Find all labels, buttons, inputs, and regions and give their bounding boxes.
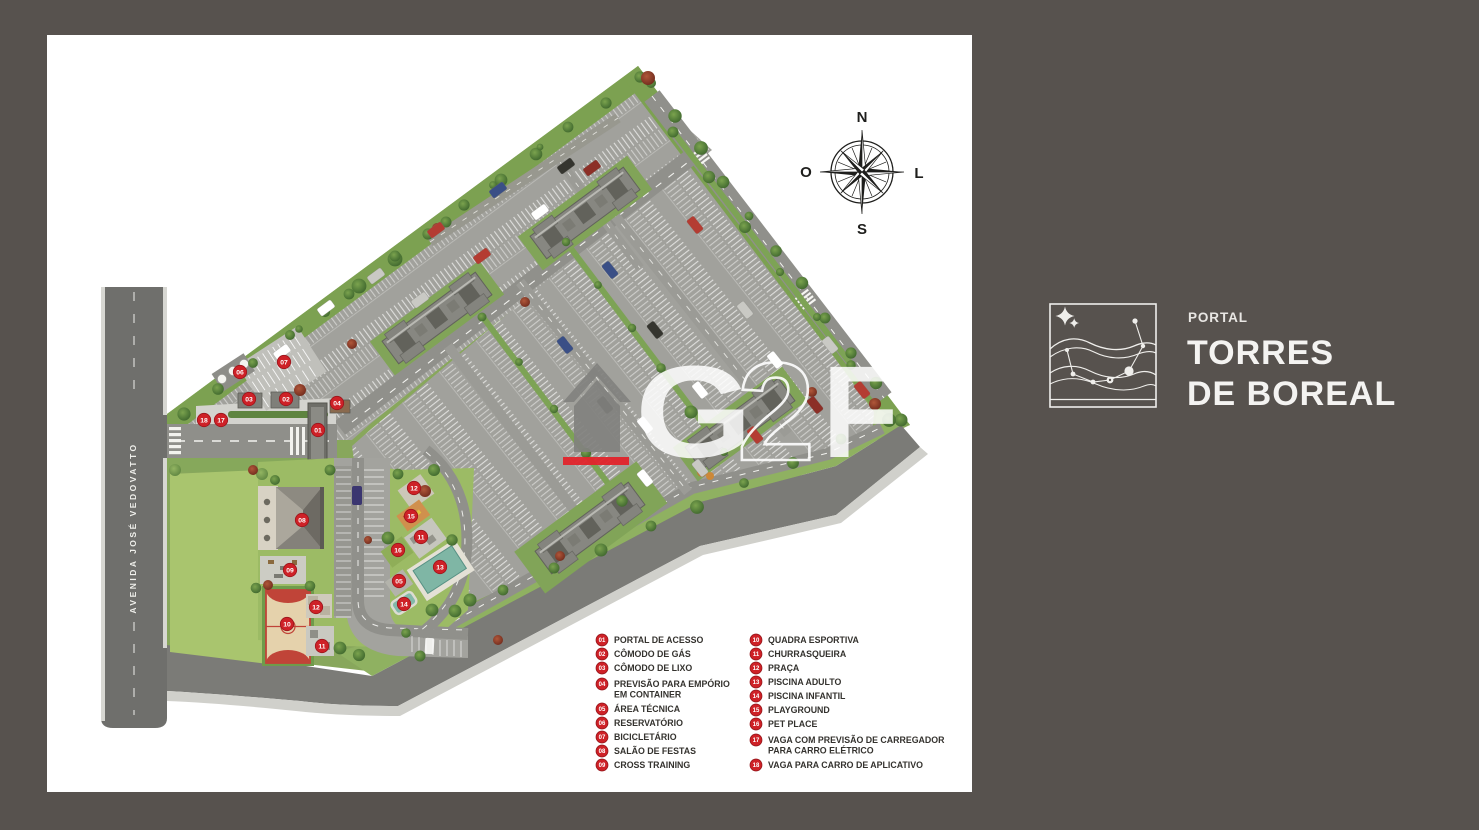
svg-text:VAGA COM PREVISÃO DE CARREGADO: VAGA COM PREVISÃO DE CARREGADOR xyxy=(768,735,945,745)
svg-text:DE BOREAL: DE BOREAL xyxy=(1187,375,1396,413)
svg-text:09: 09 xyxy=(599,763,606,769)
svg-text:15: 15 xyxy=(753,708,760,714)
svg-text:PRAÇA: PRAÇA xyxy=(768,663,800,673)
svg-text:06: 06 xyxy=(236,369,244,376)
svg-text:L: L xyxy=(914,165,923,182)
svg-text:02: 02 xyxy=(282,396,290,403)
svg-text:ÁREA TÉCNICA: ÁREA TÉCNICA xyxy=(614,704,681,714)
svg-text:01: 01 xyxy=(599,638,606,644)
svg-text:SALÃO DE FESTAS: SALÃO DE FESTAS xyxy=(614,746,696,756)
svg-text:11: 11 xyxy=(753,652,760,658)
svg-text:CHURRASQUEIRA: CHURRASQUEIRA xyxy=(768,649,847,659)
svg-text:06: 06 xyxy=(599,721,606,727)
svg-text:04: 04 xyxy=(599,682,606,688)
svg-text:AVENIDA JOSÉ VEDOVATTO: AVENIDA JOSÉ VEDOVATTO xyxy=(128,442,138,613)
svg-text:G: G xyxy=(635,339,753,485)
svg-text:O: O xyxy=(800,164,812,181)
svg-text:05: 05 xyxy=(599,707,606,713)
svg-text:12: 12 xyxy=(312,604,320,611)
svg-text:03: 03 xyxy=(599,666,606,672)
svg-text:N: N xyxy=(857,109,868,126)
svg-text:PORTAL: PORTAL xyxy=(1188,310,1248,325)
svg-text:RESERVATÓRIO: RESERVATÓRIO xyxy=(614,717,683,728)
svg-text:08: 08 xyxy=(599,749,606,755)
svg-text:11: 11 xyxy=(318,643,325,650)
svg-text:15: 15 xyxy=(407,513,415,520)
svg-text:PISCINA ADULTO: PISCINA ADULTO xyxy=(768,677,841,687)
svg-text:PREVISÃO PARA EMPÓRIO: PREVISÃO PARA EMPÓRIO xyxy=(614,678,730,689)
svg-text:16: 16 xyxy=(753,722,760,728)
svg-text:10: 10 xyxy=(283,621,291,628)
svg-text:05: 05 xyxy=(395,578,403,585)
svg-text:PARA CARRO ELÉTRICO: PARA CARRO ELÉTRICO xyxy=(768,746,874,756)
svg-text:BICICLETÁRIO: BICICLETÁRIO xyxy=(614,732,677,742)
svg-text:18: 18 xyxy=(753,763,760,769)
svg-text:S: S xyxy=(857,221,867,238)
svg-text:QUADRA ESPORTIVA: QUADRA ESPORTIVA xyxy=(768,635,860,645)
svg-text:13: 13 xyxy=(753,680,760,686)
svg-text:PORTAL DE ACESSO: PORTAL DE ACESSO xyxy=(614,635,703,645)
svg-text:07: 07 xyxy=(280,359,288,366)
svg-text:CÔMODO DE LIXO: CÔMODO DE LIXO xyxy=(614,662,692,673)
svg-text:EM CONTAINER: EM CONTAINER xyxy=(614,690,682,700)
svg-text:CROSS TRAINING: CROSS TRAINING xyxy=(614,760,690,770)
svg-text:F: F xyxy=(822,340,899,486)
svg-text:03: 03 xyxy=(245,396,253,403)
svg-text:10: 10 xyxy=(753,638,760,644)
svg-text:04: 04 xyxy=(333,400,341,407)
svg-text:17: 17 xyxy=(753,738,760,744)
svg-text:12: 12 xyxy=(753,666,760,672)
svg-text:09: 09 xyxy=(286,567,294,574)
svg-text:PLAYGROUND: PLAYGROUND xyxy=(768,705,830,715)
svg-text:11: 11 xyxy=(417,534,424,541)
svg-text:07: 07 xyxy=(599,735,606,741)
svg-text:TORRES: TORRES xyxy=(1187,334,1334,372)
svg-text:2: 2 xyxy=(737,333,815,490)
svg-text:14: 14 xyxy=(753,694,760,700)
svg-text:PISCINA INFANTIL: PISCINA INFANTIL xyxy=(768,691,846,701)
svg-text:18: 18 xyxy=(200,417,208,424)
svg-text:13: 13 xyxy=(436,564,444,571)
svg-text:01: 01 xyxy=(314,427,322,434)
svg-text:16: 16 xyxy=(394,547,402,554)
svg-text:17: 17 xyxy=(217,417,225,424)
svg-text:02: 02 xyxy=(599,652,606,658)
svg-text:CÔMODO DE GÁS: CÔMODO DE GÁS xyxy=(614,648,691,659)
svg-text:PET PLACE: PET PLACE xyxy=(768,719,817,729)
svg-text:08: 08 xyxy=(298,517,306,524)
svg-text:VAGA PARA CARRO DE APLICATIVO: VAGA PARA CARRO DE APLICATIVO xyxy=(768,760,923,770)
svg-text:14: 14 xyxy=(400,601,408,608)
svg-text:12: 12 xyxy=(410,485,418,492)
